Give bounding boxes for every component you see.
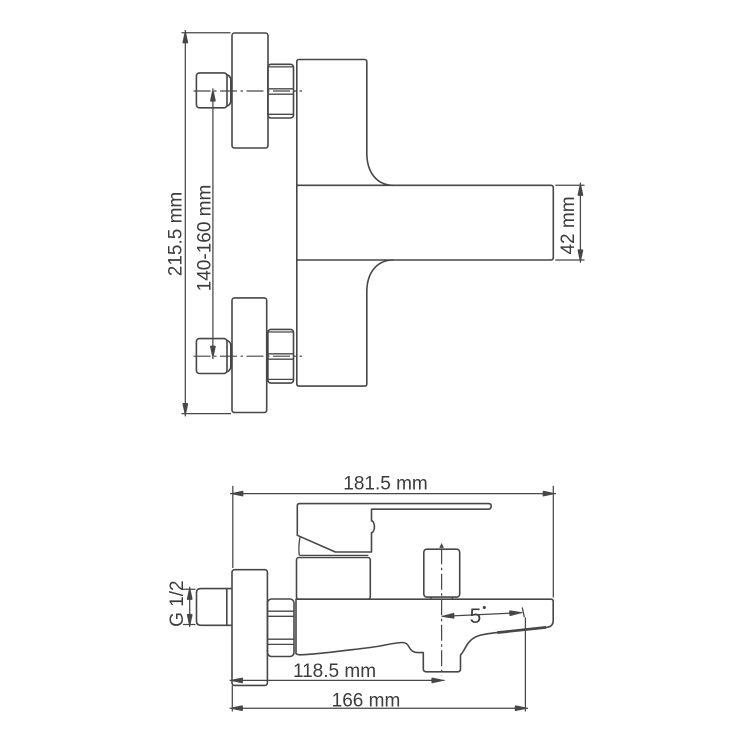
- svg-text:181.5 mm: 181.5 mm: [343, 474, 427, 495]
- svg-text:5: 5: [470, 605, 482, 628]
- svg-text:166 mm: 166 mm: [332, 690, 401, 711]
- svg-text:G 1/2: G 1/2: [167, 580, 188, 626]
- svg-text:118.5 mm: 118.5 mm: [293, 661, 376, 682]
- svg-text:140-160 mm: 140-160 mm: [195, 185, 216, 292]
- svg-text:42 mm: 42 mm: [558, 196, 579, 254]
- svg-text:215.5 mm: 215.5 mm: [165, 192, 186, 276]
